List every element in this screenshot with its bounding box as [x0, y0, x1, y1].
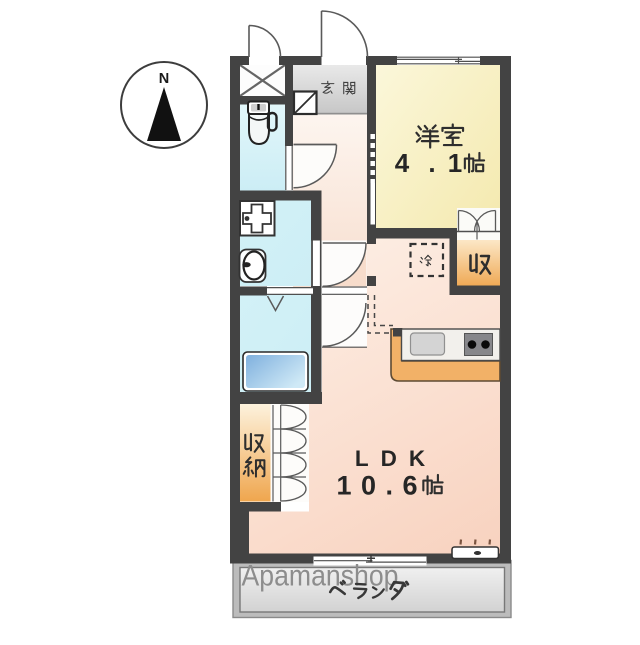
svg-text:.: .: [428, 148, 435, 178]
svg-text:10.6: 10.6: [337, 471, 428, 501]
svg-text:LDK: LDK: [355, 446, 437, 471]
svg-text:4: 4: [395, 148, 410, 178]
svg-text:N: N: [159, 71, 169, 87]
svg-text:1: 1: [448, 148, 462, 178]
